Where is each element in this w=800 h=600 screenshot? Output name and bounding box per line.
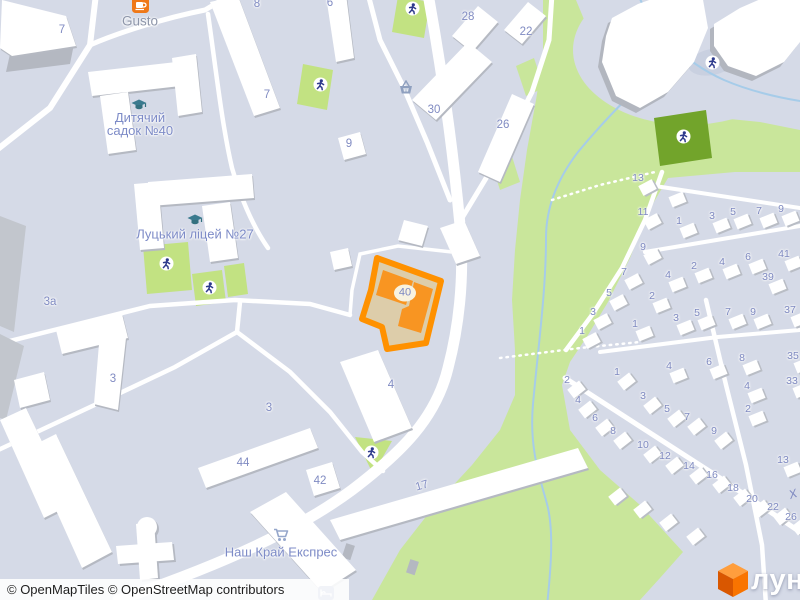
poi-label-lyceum: Луцький ліцей №27 — [136, 228, 254, 241]
church-building — [116, 517, 174, 580]
cafe-icon — [132, 0, 149, 13]
house-number: 35 — [787, 350, 799, 362]
house-number: 1 — [579, 325, 585, 337]
house-number: 8 — [739, 352, 745, 364]
playground-icon — [405, 1, 420, 16]
building-number: 3 — [266, 402, 272, 414]
building-number: 42 — [314, 475, 327, 487]
house-number: 5 — [606, 287, 612, 299]
house-number: 1 — [676, 215, 682, 227]
house-number: 7 — [621, 266, 627, 278]
building-number: 6 — [327, 0, 333, 9]
house-number: 4 — [719, 256, 725, 268]
building-number: 22 — [520, 26, 533, 38]
house-number: 18 — [727, 482, 739, 494]
house-number: 7 — [684, 411, 690, 423]
house-number: 9 — [640, 241, 646, 253]
house-number: 13 — [632, 172, 644, 184]
building-number: 3 — [110, 373, 116, 385]
building-number: 28 — [462, 11, 475, 23]
house-number: 2 — [691, 260, 697, 272]
house-number: 6 — [745, 251, 751, 263]
house-number: 1 — [632, 318, 638, 330]
house-number: 9 — [711, 425, 717, 437]
building-number: 8 — [254, 0, 260, 10]
house-number: 5 — [730, 206, 736, 218]
playground-icon — [364, 445, 379, 460]
house-number: 4 — [575, 394, 581, 406]
house-number: 9 — [778, 203, 784, 215]
playground-icon — [202, 280, 217, 295]
house-number: 5 — [694, 307, 700, 319]
house-number: 4 — [665, 269, 671, 281]
playground-icon — [313, 77, 328, 92]
building-number: 3а — [44, 296, 57, 308]
building-number: 30 — [428, 104, 441, 116]
house-number: 6 — [706, 356, 712, 368]
map-canvas[interactable]: 1311975311357942464139213579374684235331… — [0, 0, 800, 600]
house-number: 4 — [666, 360, 672, 372]
house-number: 20 — [746, 493, 758, 505]
house-number: 37 — [784, 304, 796, 316]
house-number: 39 — [762, 271, 774, 283]
house-number: 8 — [610, 425, 616, 437]
house-number: 7 — [756, 205, 762, 217]
house-number: 14 — [683, 460, 695, 472]
house-number: 3 — [640, 390, 646, 402]
house-number: 1 — [614, 366, 620, 378]
highlighted-building-40[interactable] — [362, 258, 441, 349]
house-number: 3 — [709, 210, 715, 222]
house-number: 6 — [592, 412, 598, 424]
house-number: 16 — [706, 469, 718, 481]
house-number: 12 — [659, 450, 671, 462]
building-number: 44 — [237, 457, 250, 469]
playground-icon — [159, 256, 174, 271]
house-number: 33 — [786, 375, 798, 387]
playground-icon — [676, 129, 691, 144]
attribution-text[interactable]: © OpenMapTiles © OpenStreetMap contribut… — [0, 579, 349, 600]
house-number: 10 — [637, 439, 649, 451]
playground-icon — [705, 55, 720, 70]
house-number: 41 — [778, 248, 790, 260]
poi-label-nash-krai: Наш Край Експрес — [225, 546, 338, 559]
lun-logo-text[interactable]: лун — [751, 564, 800, 597]
house-number: 9 — [750, 306, 756, 318]
school-icon — [187, 214, 203, 226]
building-number: 9 — [346, 138, 352, 150]
house-number: 5 — [664, 403, 670, 415]
subject-building-number[interactable]: 40 — [394, 285, 416, 302]
poi-label-kindergarten: Дитячийсадок №40 — [107, 111, 173, 137]
house-number: 2 — [564, 374, 570, 386]
house-number: 26 — [785, 511, 797, 523]
house-number: 4 — [744, 380, 750, 392]
house-number: 2 — [745, 403, 751, 415]
house-number: 3 — [590, 306, 596, 318]
house-number: 11 — [638, 206, 649, 218]
attribution-bar: © OpenMapTiles © OpenStreetMap contribut… — [0, 579, 349, 600]
building-number: 4 — [388, 379, 394, 391]
house-number: 7 — [725, 306, 731, 318]
building-number: 7 — [264, 89, 270, 101]
lun-logo-cube[interactable] — [712, 560, 748, 598]
building-number: 7 — [59, 24, 65, 36]
building-number: 26 — [497, 119, 510, 131]
house-number: 13 — [777, 454, 789, 466]
house-number: 3 — [673, 312, 679, 324]
basket-icon — [398, 80, 414, 95]
cart-icon — [273, 528, 289, 542]
house-number: 2 — [649, 290, 655, 302]
house-number: 22 — [767, 501, 779, 513]
poi-label-gusto: Gusto — [122, 15, 158, 28]
